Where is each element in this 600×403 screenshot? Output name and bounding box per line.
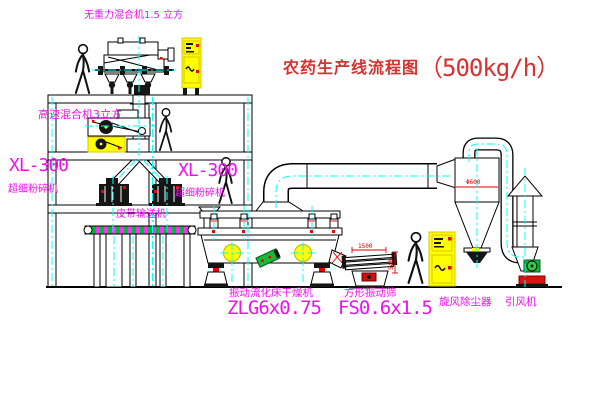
fluid-bed-dryer [198,202,346,287]
weightless-mixer [95,38,174,95]
label-pulverizer-center-model: XL-300 [178,162,237,180]
label-fan: 引风机 [505,297,537,308]
label-pulverizer-center-name: 超细粉碎机 [175,189,225,199]
label-cyclone: 旋风除尘器 [439,297,492,308]
label-weightless-mixer: 无重力混合机1.5 立方 [84,11,183,21]
vibration-mount [310,263,334,287]
floor-slab-middle [48,152,252,160]
cyclone-inlet [437,159,456,188]
control-cabinet-top [182,38,201,95]
vibrating-sieve: 1500 540 [342,243,398,289]
conveyor-legs [94,234,190,287]
label-pulverizer-left-model: XL-300 [9,157,68,175]
vibration-mount [204,263,228,287]
belt-conveyor [84,226,196,234]
dimension-sieve-length: 1500 [352,243,386,253]
svg-text:1500: 1500 [358,243,373,250]
worker-figure [160,109,171,151]
label-belt-conveyor: 皮带输送机 [116,210,166,220]
svg-text:Φ600: Φ600 [466,179,481,186]
page-title: 农药生产线流程图 （500kg/h） [283,48,559,83]
cad-canvas: 1500 540 Φ600 [0,0,600,403]
label-sieve-model: FS0.6x1.5 [338,299,432,318]
dryer-exhaust-hood [256,202,303,211]
worker-figure [409,233,423,283]
title-text: 农药生产线流程图 [283,54,419,78]
label-pulverizer-left-name: 超细粉碎机 [8,185,58,195]
control-cabinet-ground [429,232,455,286]
induced-draft-fan [512,247,548,287]
floor-slab-top [48,95,252,103]
title-capacity: （500kg/h） [419,48,559,83]
label-high-speed-mixer: 高速混合机3立方 [38,109,122,120]
dryer-exhaust-duct [276,159,456,206]
worker-figure [76,45,89,93]
pulverizer-left [96,178,132,206]
label-dryer-model: ZLG6x0.75 [227,299,321,318]
svg-text:540: 540 [388,259,395,270]
